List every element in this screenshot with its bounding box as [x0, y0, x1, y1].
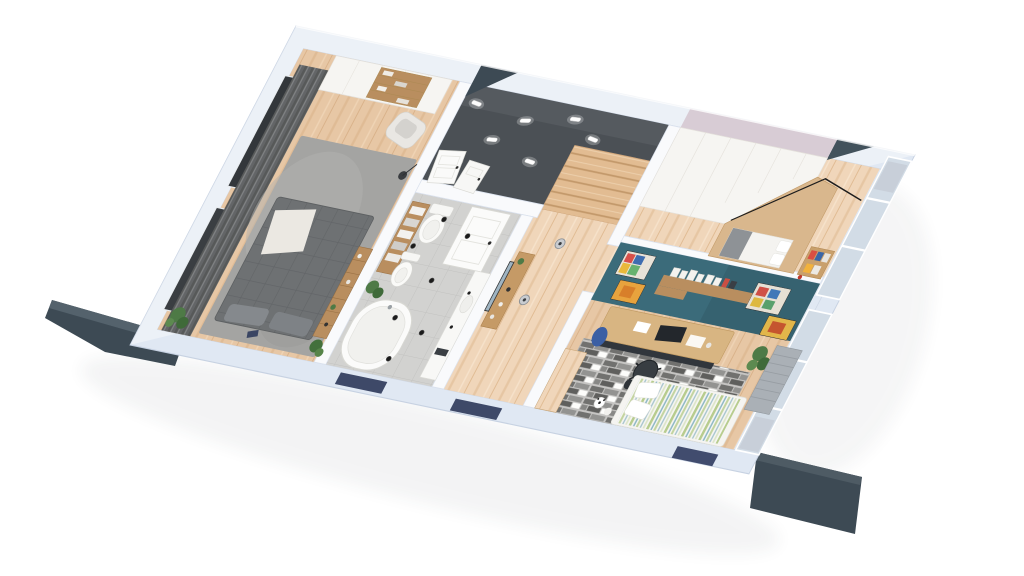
floor-plan-svg — [0, 0, 1024, 576]
floor-plan-render — [0, 0, 1024, 576]
